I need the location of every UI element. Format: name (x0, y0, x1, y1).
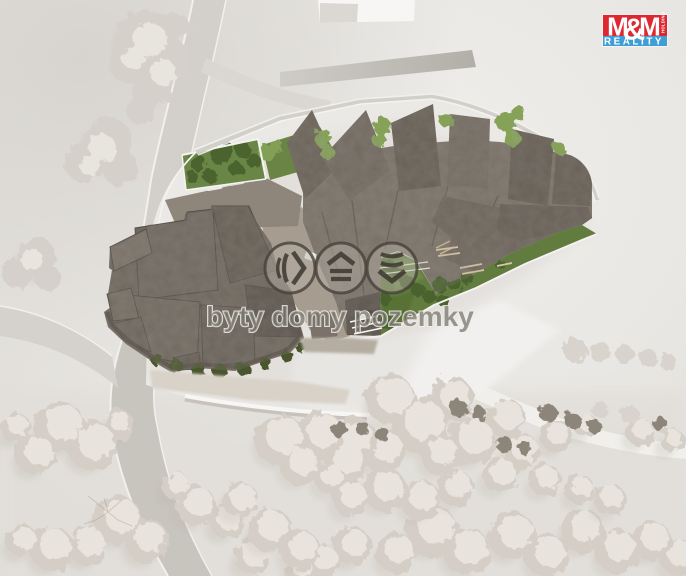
svg-text:REALITY: REALITY (604, 37, 664, 48)
svg-text:byty domy pozemky: byty domy pozemky (206, 301, 474, 332)
svg-text:HOLDING: HOLDING (661, 12, 666, 33)
